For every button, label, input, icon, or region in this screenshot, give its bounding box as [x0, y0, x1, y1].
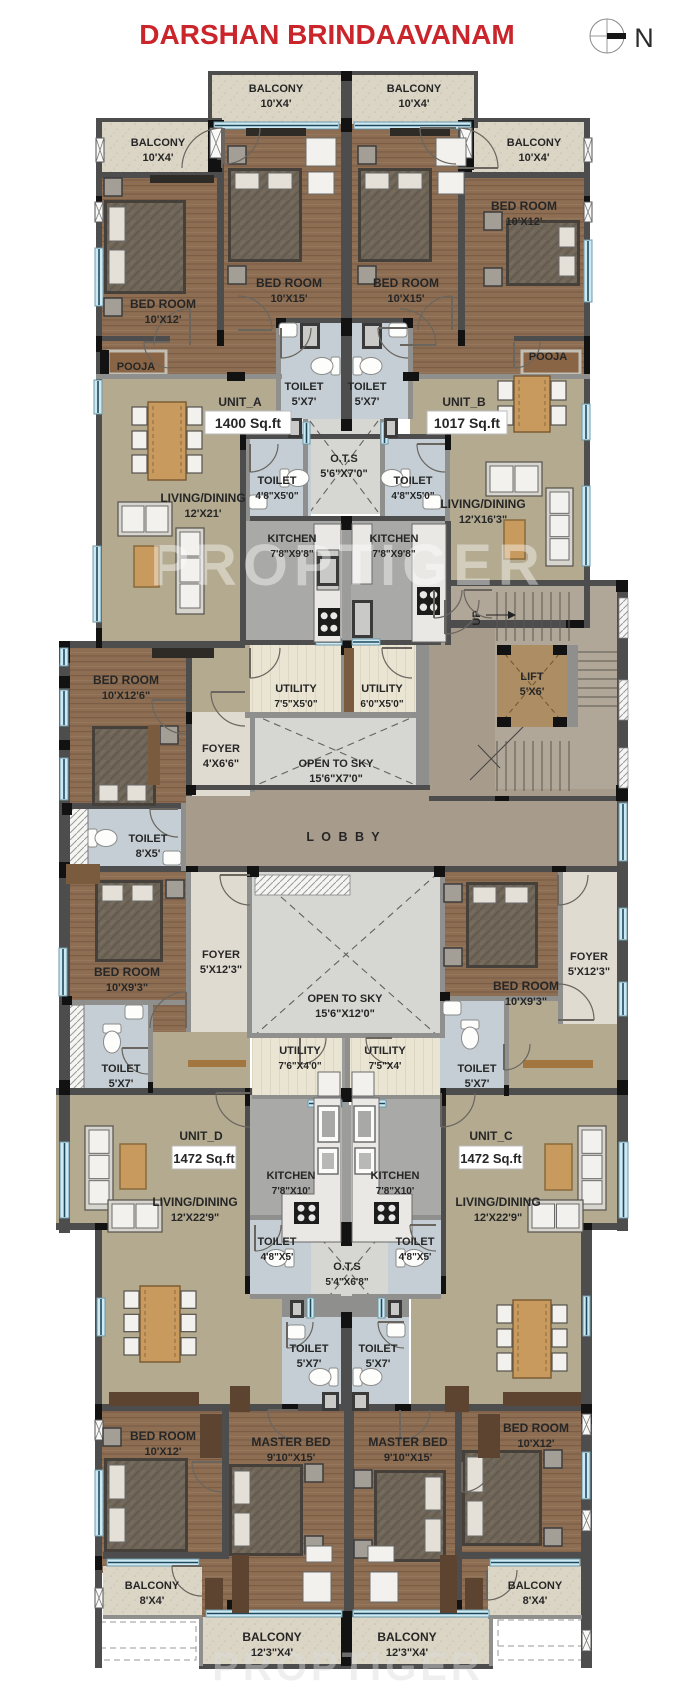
svg-text:BED ROOM: BED ROOM	[130, 1429, 196, 1443]
svg-text:5'X7': 5'X7'	[297, 1358, 322, 1370]
svg-text:5'X7': 5'X7'	[366, 1358, 391, 1370]
svg-text:4'8"X5'0": 4'8"X5'0"	[391, 491, 434, 502]
svg-text:1017 Sq.ft: 1017 Sq.ft	[434, 415, 500, 431]
svg-text:UNIT_A: UNIT_A	[218, 395, 262, 409]
svg-text:LIFT: LIFT	[520, 671, 543, 683]
svg-text:7'5"X5'0": 7'5"X5'0"	[274, 699, 317, 710]
svg-text:12'X16'3": 12'X16'3"	[459, 514, 507, 526]
svg-text:KITCHEN: KITCHEN	[371, 1170, 420, 1182]
svg-text:LIVING/DINING: LIVING/DINING	[152, 1195, 237, 1209]
svg-text:TOILET: TOILET	[359, 1343, 398, 1355]
svg-text:BED ROOM: BED ROOM	[256, 276, 322, 290]
svg-text:OPEN TO SKY: OPEN TO SKY	[299, 758, 375, 770]
svg-text:UTILITY: UTILITY	[364, 1045, 406, 1057]
svg-text:BED ROOM: BED ROOM	[93, 673, 159, 687]
svg-text:1472 Sq.ft: 1472 Sq.ft	[460, 1151, 522, 1166]
svg-text:UTILITY: UTILITY	[279, 1045, 321, 1057]
svg-text:4'X6'6": 4'X6'6"	[203, 758, 239, 770]
svg-text:10'X4': 10'X4'	[261, 98, 292, 110]
svg-text:10'X12': 10'X12'	[517, 1438, 554, 1450]
svg-text:TOILET: TOILET	[258, 475, 297, 487]
svg-text:10'X15': 10'X15'	[270, 293, 307, 305]
svg-text:12'X22'9": 12'X22'9"	[171, 1212, 219, 1224]
svg-text:KITCHEN: KITCHEN	[268, 533, 317, 545]
svg-text:UNIT_D: UNIT_D	[179, 1129, 223, 1143]
svg-text:KITCHEN: KITCHEN	[267, 1170, 316, 1182]
svg-text:TOILET: TOILET	[394, 475, 433, 487]
svg-text:BED ROOM: BED ROOM	[493, 979, 559, 993]
svg-text:UNIT_C: UNIT_C	[469, 1129, 513, 1143]
svg-text:DARSHAN BRINDAAVANAM: DARSHAN BRINDAAVANAM	[139, 19, 514, 50]
svg-text:UNIT_B: UNIT_B	[442, 395, 486, 409]
svg-text:8'X4': 8'X4'	[140, 1595, 165, 1607]
svg-text:L O B B Y: L O B B Y	[306, 830, 381, 844]
svg-text:7'8"X10': 7'8"X10'	[376, 1186, 414, 1197]
svg-text:TOILET: TOILET	[458, 1063, 497, 1075]
svg-text:BED ROOM: BED ROOM	[491, 199, 557, 213]
svg-text:8'X4': 8'X4'	[523, 1595, 548, 1607]
svg-text:TOILET: TOILET	[102, 1063, 141, 1075]
svg-text:10'X12': 10'X12'	[144, 314, 181, 326]
svg-text:BALCONY: BALCONY	[131, 137, 186, 149]
svg-text:5'4"X6'8": 5'4"X6'8"	[325, 1277, 368, 1288]
svg-text:BED ROOM: BED ROOM	[130, 297, 196, 311]
svg-text:9'10"X15': 9'10"X15'	[267, 1452, 316, 1464]
svg-text:BALCONY: BALCONY	[242, 1630, 301, 1644]
svg-text:12'X21': 12'X21'	[184, 508, 221, 520]
svg-text:TOILET: TOILET	[396, 1236, 435, 1248]
svg-text:POOJA: POOJA	[529, 351, 568, 363]
svg-text:4'8"X5'0": 4'8"X5'0"	[255, 491, 298, 502]
svg-text:BED ROOM: BED ROOM	[94, 965, 160, 979]
svg-text:10'X4': 10'X4'	[519, 152, 550, 164]
svg-text:LIVING/DINING: LIVING/DINING	[440, 497, 525, 511]
svg-text:BED ROOM: BED ROOM	[373, 276, 439, 290]
svg-text:10'X12': 10'X12'	[505, 216, 542, 228]
svg-text:7'5"X4': 7'5"X4'	[369, 1061, 402, 1072]
svg-text:7'6"X4'0": 7'6"X4'0"	[278, 1061, 321, 1072]
svg-text:BED ROOM: BED ROOM	[503, 1421, 569, 1435]
svg-text:TOILET: TOILET	[290, 1343, 329, 1355]
svg-text:TOILET: TOILET	[348, 381, 387, 393]
svg-text:KITCHEN: KITCHEN	[370, 533, 419, 545]
svg-text:UTILITY: UTILITY	[361, 683, 403, 695]
svg-text:7'8"X9'8": 7'8"X9'8"	[372, 549, 415, 560]
svg-text:10'X9'3": 10'X9'3"	[505, 996, 547, 1008]
svg-text:12'3"X4': 12'3"X4'	[251, 1647, 294, 1659]
svg-text:10'X4': 10'X4'	[143, 152, 174, 164]
svg-text:10'X4': 10'X4'	[399, 98, 430, 110]
svg-text:8'X5': 8'X5'	[136, 848, 161, 860]
svg-text:6'0"X5'0": 6'0"X5'0"	[360, 699, 403, 710]
svg-text:LIVING/DINING: LIVING/DINING	[455, 1195, 540, 1209]
svg-text:OPEN TO SKY: OPEN TO SKY	[308, 993, 384, 1005]
svg-text:BALCONY: BALCONY	[125, 1580, 180, 1592]
svg-text:15'6"X12'0": 15'6"X12'0"	[315, 1008, 375, 1020]
svg-text:1472 Sq.ft: 1472 Sq.ft	[173, 1151, 235, 1166]
svg-text:O.T.S: O.T.S	[333, 1261, 361, 1273]
svg-text:5'X7': 5'X7'	[355, 396, 380, 408]
svg-text:10'X15': 10'X15'	[387, 293, 424, 305]
svg-text:N: N	[634, 23, 654, 53]
svg-text:TOILET: TOILET	[129, 833, 168, 845]
svg-text:5'X7': 5'X7'	[465, 1078, 490, 1090]
svg-text:4'8"X5': 4'8"X5'	[261, 1252, 294, 1263]
svg-text:POOJA: POOJA	[117, 361, 156, 373]
svg-text:BALCONY: BALCONY	[508, 1580, 563, 1592]
svg-text:BALCONY: BALCONY	[377, 1630, 436, 1644]
svg-text:5'X7': 5'X7'	[292, 396, 317, 408]
svg-text:5'X6': 5'X6'	[520, 686, 545, 698]
svg-text:12'3"X4': 12'3"X4'	[386, 1647, 429, 1659]
svg-text:10'X9'3": 10'X9'3"	[106, 982, 148, 994]
svg-text:1400 Sq.ft: 1400 Sq.ft	[215, 415, 281, 431]
svg-text:BALCONY: BALCONY	[249, 83, 304, 95]
svg-text:TOILET: TOILET	[285, 381, 324, 393]
svg-text:UTILITY: UTILITY	[275, 683, 317, 695]
svg-text:MASTER BED: MASTER BED	[251, 1435, 331, 1449]
svg-text:BALCONY: BALCONY	[387, 83, 442, 95]
svg-text:4'8"X5': 4'8"X5'	[399, 1252, 432, 1263]
svg-text:15'6"X7'0": 15'6"X7'0"	[309, 773, 363, 785]
svg-text:MASTER BED: MASTER BED	[368, 1435, 448, 1449]
svg-text:7'8"X9'8": 7'8"X9'8"	[270, 549, 313, 560]
svg-text:9'10"X15': 9'10"X15'	[384, 1452, 433, 1464]
svg-text:10'X12'6": 10'X12'6"	[102, 690, 150, 702]
svg-text:7'8"X10': 7'8"X10'	[272, 1186, 310, 1197]
svg-text:TOILET: TOILET	[258, 1236, 297, 1248]
svg-text:5'X12'3": 5'X12'3"	[200, 964, 242, 976]
svg-text:5'6"X7'0": 5'6"X7'0"	[320, 468, 367, 480]
svg-text:5'X7': 5'X7'	[109, 1078, 134, 1090]
svg-text:12'X22'9": 12'X22'9"	[474, 1212, 522, 1224]
svg-text:10'X12': 10'X12'	[144, 1446, 181, 1458]
svg-text:O.T.S: O.T.S	[330, 453, 358, 465]
svg-text:FOYER: FOYER	[570, 951, 608, 963]
svg-text:PROPTIGER: PROPTIGER	[150, 533, 546, 598]
svg-text:LIVING/DINING: LIVING/DINING	[160, 491, 245, 505]
svg-text:FOYER: FOYER	[202, 949, 240, 961]
svg-text:BALCONY: BALCONY	[507, 137, 562, 149]
svg-text:5'X12'3": 5'X12'3"	[568, 966, 610, 978]
svg-text:FOYER: FOYER	[202, 743, 240, 755]
